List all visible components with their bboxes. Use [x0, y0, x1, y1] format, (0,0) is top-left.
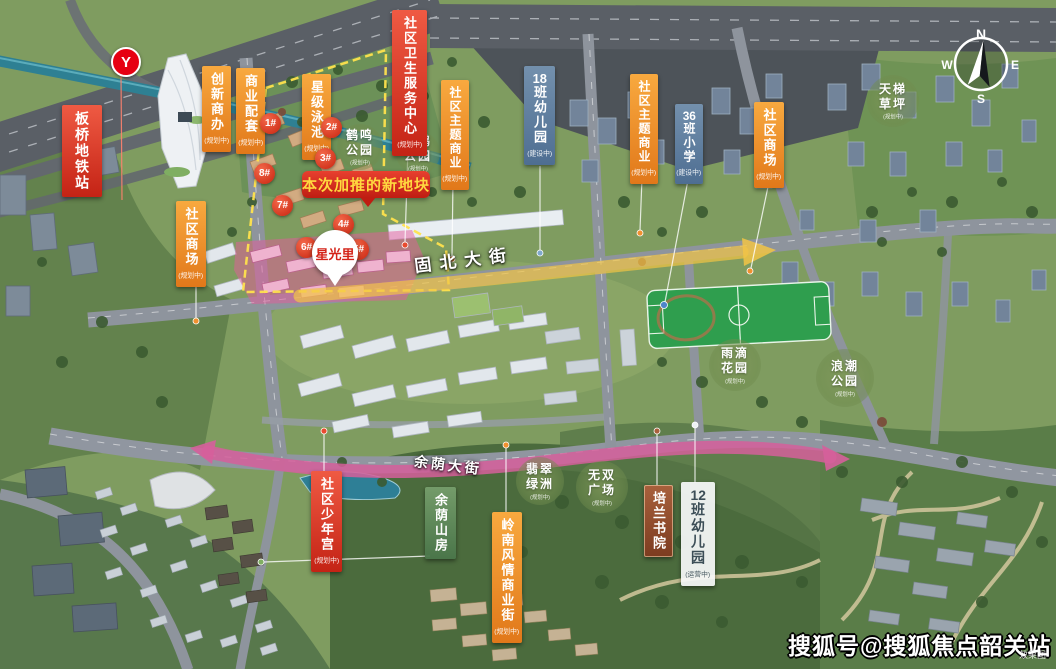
plot-marker-3: 3#: [315, 148, 336, 169]
label-community-mall-west: 社区商场 (规划中): [176, 201, 206, 287]
park-status: (规划中): [725, 376, 745, 384]
facility-status: (规划中): [495, 627, 520, 636]
label-banqiao-metro-station: 板桥地铁站: [62, 105, 102, 197]
park-heming: 鹤鸣公园 (规划中): [337, 124, 383, 170]
facility-name: 余荫山房: [434, 493, 447, 553]
label-community-health-center: 社区卫生服务中心 (规划中): [392, 10, 427, 156]
park-yudi-garden: 雨滴花园 (规划中): [709, 339, 761, 391]
label-commercial-amenities: 商业配套 (规划中): [236, 68, 265, 154]
facility-name: 社区商场: [185, 207, 198, 267]
park-name: 浪潮公园: [827, 359, 863, 389]
label-primary-school-36: 36班小学 (建设中): [675, 104, 703, 184]
label-community-theme-commerce-west: 社区主题商业 (规划中): [441, 80, 469, 190]
facility-name: 岭南风情商业街: [501, 518, 514, 623]
plot-marker-7: 7#: [272, 195, 293, 216]
park-name: 鹤鸣公园: [342, 128, 378, 158]
label-peilan-academy: 培兰书院: [644, 485, 673, 557]
label-community-mall-northeast: 社区商场 (规划中): [754, 102, 784, 188]
facility-name: 培兰书院: [652, 491, 665, 551]
park-wushuang-plaza: 无双广场 (规划中): [576, 461, 628, 513]
facility-status: (规划中): [179, 271, 204, 280]
park-status: (规划中): [883, 112, 903, 120]
label-yuyin-garden: 余荫山房: [425, 487, 456, 559]
facility-name: 板桥地铁站: [75, 111, 89, 191]
facility-name: 12班幼儿园: [691, 488, 705, 566]
project-pin-label: 星光里: [315, 244, 354, 263]
facility-status: (建设中): [677, 168, 702, 177]
park-langchao: 浪潮公园 (规划中): [816, 349, 874, 407]
label-community-theme-commerce-east: 社区主题商业 (规划中): [630, 74, 658, 184]
render-note: 效果图: [1019, 648, 1046, 661]
facility-status: (规划中): [397, 140, 422, 149]
park-name: 翡翠绿洲: [522, 462, 558, 492]
facility-status: (规划中): [238, 138, 263, 147]
label-kindergarten-12: 12班幼儿园 (运营中): [681, 482, 715, 586]
facility-name: 社区商场: [763, 108, 776, 168]
facility-name: 社区主题商业: [449, 86, 461, 170]
facility-status: (建设中): [527, 149, 552, 158]
facility-status: (规划中): [314, 556, 339, 565]
park-status: (规划中): [530, 492, 550, 500]
park-name: 无双广场: [584, 468, 620, 498]
facility-name: 36班小学: [683, 110, 695, 164]
label-lingnan-commercial-street: 岭南风情商业街 (规划中): [492, 512, 522, 643]
label-youth-palace: 社区少年宫 (规划中): [311, 471, 342, 572]
facility-name: 社区少年宫: [320, 477, 333, 552]
plot-marker-2: 2#: [321, 117, 342, 138]
metro-logo-icon: Y: [111, 47, 141, 77]
facility-name: 18班幼儿园: [533, 72, 546, 145]
new-plot-banner: 本次加推的新地块: [302, 171, 430, 198]
plot-marker-8: 8#: [254, 163, 275, 184]
facility-status: (运营中): [686, 570, 711, 579]
facility-status: (规划中): [757, 172, 782, 181]
facility-status: (规划中): [443, 174, 468, 183]
park-tianti-lawn: 天梯草坪 (规划中): [867, 75, 919, 127]
park-name: 雨滴花园: [717, 346, 753, 376]
plot-marker-1: 1#: [260, 113, 281, 134]
facility-status: (规划中): [204, 136, 229, 145]
watermark-sohu: 搜狐号@搜狐焦点韶关站: [788, 627, 1051, 661]
facility-name: 社区主题商业: [638, 80, 650, 164]
facility-name: 创新商办: [210, 72, 223, 132]
facility-name: 社区卫生服务中心: [403, 16, 416, 136]
park-status: (规划中): [592, 498, 612, 506]
facility-name: 商业配套: [244, 74, 257, 134]
project-pin-xingguangli: 星光里: [312, 230, 358, 276]
park-name: 天梯草坪: [875, 82, 911, 112]
aerial-masterplan-map: N E S W Y 固北大街 余荫大街 板桥地铁站 创新商办 (规划中) 商业配…: [0, 0, 1056, 669]
label-kindergarten-18: 18班幼儿园 (建设中): [524, 66, 555, 165]
park-feicui-oasis: 翡翠绿洲 (规划中): [516, 457, 564, 505]
park-status: (规划中): [835, 389, 855, 397]
label-innovation-office: 创新商办 (规划中): [202, 66, 231, 152]
facility-status: (规划中): [632, 168, 657, 177]
park-status: (规划中): [350, 158, 370, 166]
